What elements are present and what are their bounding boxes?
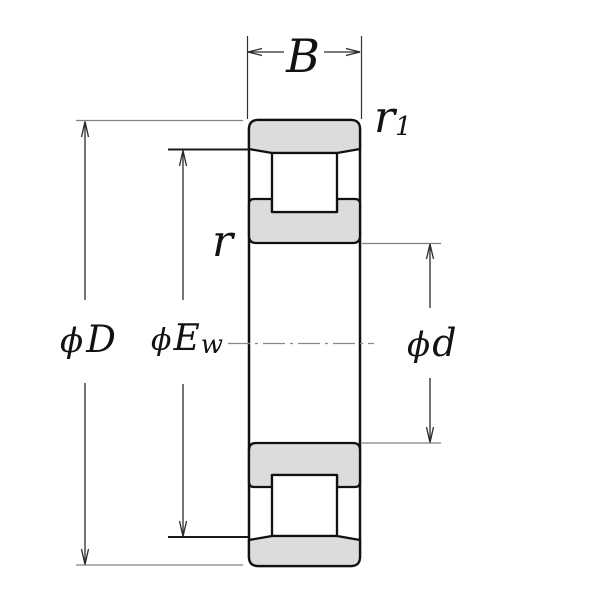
label-raceway-diameter: ϕEw [151, 318, 223, 360]
dimension-bore-diameter: ϕd [362, 244, 457, 444]
roller-bottom [272, 475, 337, 536]
dimension-B: B [248, 29, 362, 119]
label-chamfer-r: r [212, 216, 236, 267]
label-outer-diameter: ϕD [60, 318, 116, 361]
outer-ring-top-section [249, 120, 360, 153]
label-bore-diameter: ϕd [407, 321, 457, 365]
bearing-dimension-diagram: B ϕD ϕEw [0, 0, 600, 600]
outer-ring-bottom-section [249, 536, 360, 566]
label-width-B: B [285, 29, 320, 83]
roller-top [272, 153, 337, 212]
label-chamfer-r1: r1 [374, 92, 412, 143]
diagram-canvas: B ϕD ϕEw [0, 0, 600, 600]
